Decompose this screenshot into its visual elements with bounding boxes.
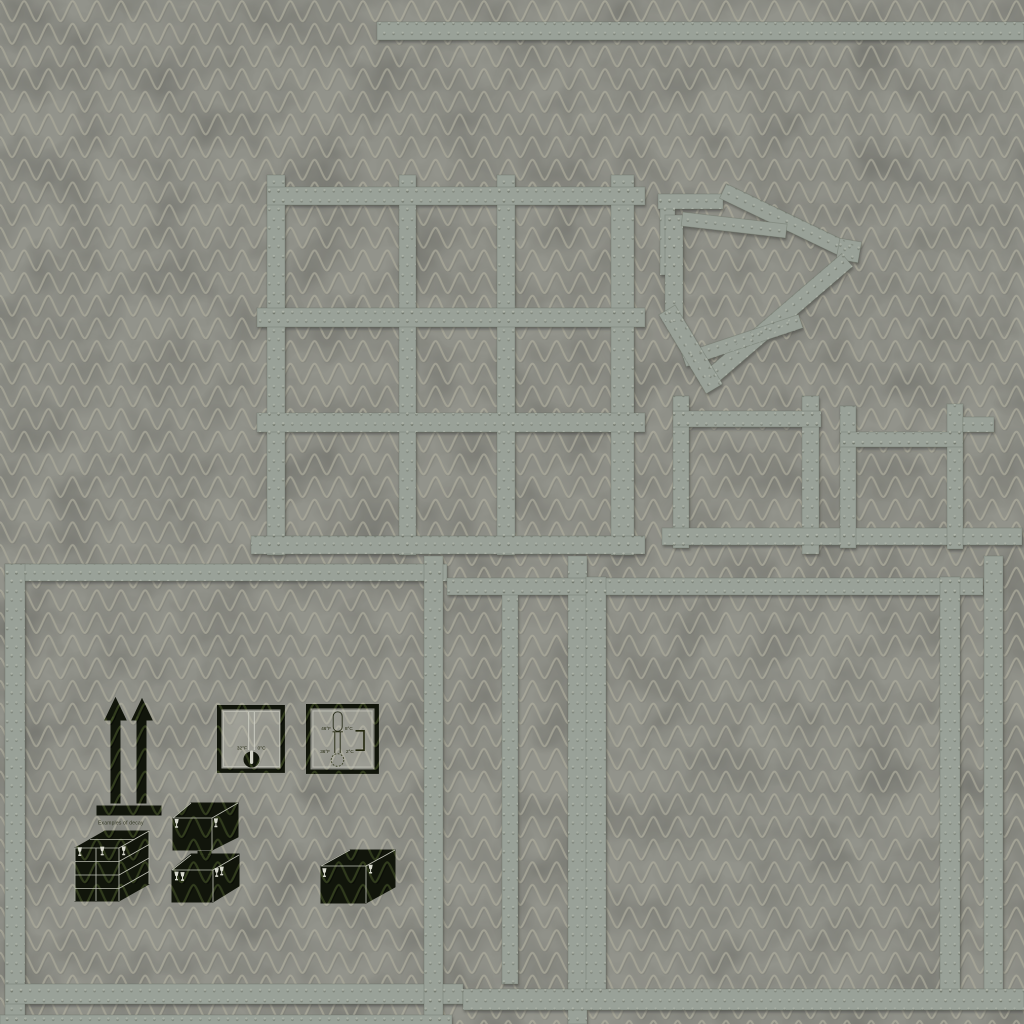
svg-text:0°C: 0°C bbox=[258, 746, 267, 752]
svg-text:32°F: 32°F bbox=[237, 746, 247, 752]
svg-text:46°F: 46°F bbox=[321, 726, 331, 731]
svg-text:36°F: 36°F bbox=[320, 749, 330, 754]
svg-text:2°C: 2°C bbox=[346, 749, 354, 754]
svg-text:8°C: 8°C bbox=[345, 726, 353, 731]
svg-text:Examples of decay: Examples of decay bbox=[98, 821, 144, 827]
